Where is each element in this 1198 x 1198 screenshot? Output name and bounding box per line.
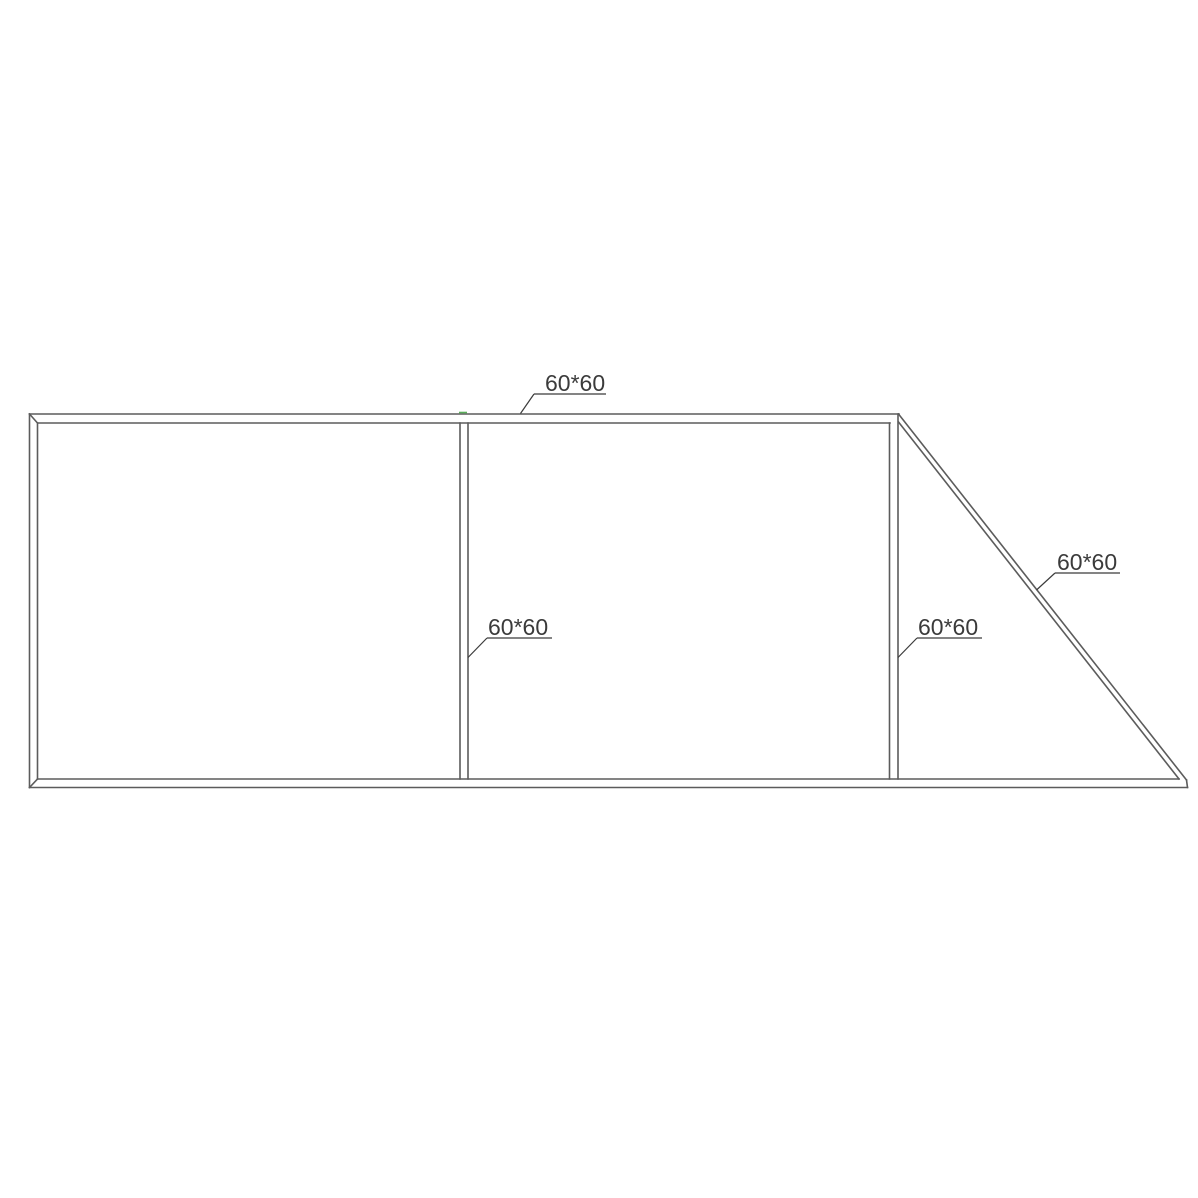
dimension-label-diagonal-brace: 60*60 bbox=[1037, 549, 1121, 590]
dimension-label-top-rail: 60*60 bbox=[521, 370, 607, 414]
top-left-miter-joint bbox=[30, 414, 38, 423]
diagonal-brace-outer-edge bbox=[899, 414, 1187, 780]
dimension-label-center-post: 60*60 bbox=[468, 614, 552, 658]
dimension-label-top-rail-text: 60*60 bbox=[545, 370, 605, 396]
dimension-label-right-post: 60*60 bbox=[898, 614, 982, 658]
dimension-labels: 60*6060*6060*6060*60 bbox=[468, 370, 1120, 658]
dimension-label-right-post-text: 60*60 bbox=[918, 614, 978, 640]
dimension-label-center-post-text: 60*60 bbox=[488, 614, 548, 640]
dimension-label-right-post-leader-line bbox=[898, 638, 917, 658]
diagonal-brace-inner-edge bbox=[899, 422, 1180, 779]
frame-members bbox=[30, 414, 1188, 788]
dimension-label-diagonal-brace-text: 60*60 bbox=[1057, 549, 1117, 575]
drawing-page: 60*6060*6060*6060*60 bbox=[0, 0, 1198, 1198]
dimension-label-diagonal-brace-leader-line bbox=[1037, 573, 1056, 590]
bottom-rail-right-end-cap bbox=[1187, 780, 1188, 788]
dimension-label-top-rail-leader-line bbox=[521, 394, 535, 414]
bottom-left-miter-joint bbox=[30, 779, 38, 788]
dimension-label-center-post-leader-line bbox=[468, 638, 487, 658]
frame-drawing-canvas: 60*6060*6060*6060*60 bbox=[0, 0, 1198, 1198]
